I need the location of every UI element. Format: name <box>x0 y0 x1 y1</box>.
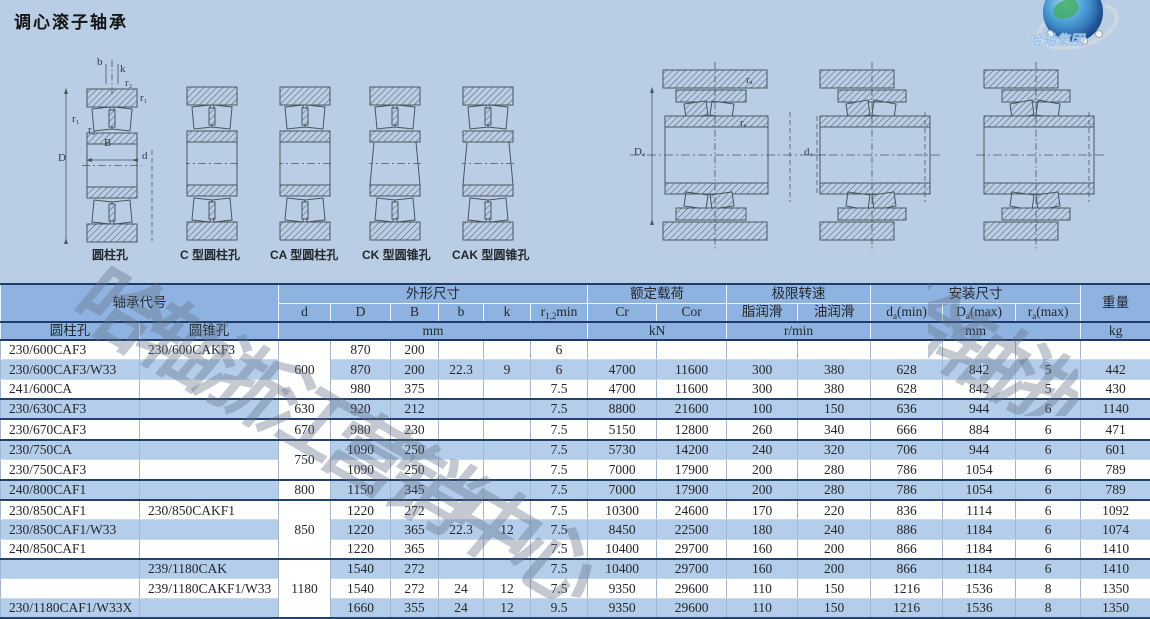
table-cell: 180 <box>727 520 798 539</box>
table-cell <box>439 419 484 440</box>
table-cell: 100 <box>727 399 798 420</box>
table-cell: 365 <box>391 539 439 559</box>
table-cell: 200 <box>798 559 871 579</box>
table-cell: 230/850CAF1/W33 <box>1 520 140 539</box>
table-cell: 1540 <box>331 559 391 579</box>
table-cell: 1536 <box>943 579 1016 598</box>
table-row: 230/1180CAF1/W33X166035524129.5935029600… <box>1 598 1150 618</box>
table-cell: 22500 <box>657 520 727 539</box>
table-cell: 980 <box>331 419 391 440</box>
diagram-caption-c-cylindrical: C 型圆柱孔 <box>180 246 240 263</box>
unit-mm: mm <box>279 322 588 340</box>
table-cell: 1536 <box>943 598 1016 618</box>
table-cell: 24 <box>439 579 484 598</box>
table-cell <box>439 399 484 420</box>
table-cell <box>439 559 484 579</box>
table-cell: 250 <box>391 460 439 480</box>
table-cell: 12800 <box>657 419 727 440</box>
table-cell: 850 <box>279 500 331 559</box>
company-logo-text: 哈轴集团 <box>1028 30 1084 50</box>
table-cell: 630 <box>279 399 331 420</box>
page-title: 调心滚子轴承 <box>14 8 128 33</box>
table-cell: 7.5 <box>531 539 588 559</box>
col-header-Da-max: Da(max) <box>943 303 1016 322</box>
dim-label-da: dₐ <box>804 146 813 158</box>
col-header-cor: Cor <box>657 303 727 322</box>
table-cell: 1184 <box>943 539 1016 559</box>
dim-label-B: B <box>104 137 111 149</box>
table-cell: 1184 <box>943 520 1016 539</box>
table-cell: 10400 <box>588 539 657 559</box>
table-cell <box>1016 340 1081 360</box>
table-cell: 1140 <box>1081 399 1150 420</box>
table-cell: 230/670CAF3 <box>1 419 140 440</box>
diagram-ca-type-cylindrical-bore <box>279 86 331 242</box>
table-cell: 866 <box>871 539 943 559</box>
table-cell: 212 <box>391 399 439 420</box>
table-cell: 200 <box>727 460 798 480</box>
table-cell <box>439 379 484 399</box>
table-cell: 280 <box>798 480 871 501</box>
table-cell: 1220 <box>331 500 391 520</box>
col-header-d: d <box>279 303 331 322</box>
table-cell: 17900 <box>657 460 727 480</box>
dim-label-ra: rₐ <box>746 74 753 86</box>
table-cell: 842 <box>943 360 1016 379</box>
table-cell: 170 <box>727 500 798 520</box>
col-group-mounting: 安装尺寸 <box>871 284 1081 303</box>
dim-label-r2: r₂ <box>125 77 133 89</box>
table-cell: 7.5 <box>531 480 588 501</box>
table-cell: 1216 <box>871 598 943 618</box>
diagram-caption-cylindrical: 圆柱孔 <box>92 246 128 263</box>
table-cell: 6 <box>1016 500 1081 520</box>
table-cell <box>484 460 531 480</box>
table-cell <box>588 340 657 360</box>
dim-label-Da: Dₐ <box>634 146 645 158</box>
col-header-B: B <box>391 303 439 322</box>
table-cell: 280 <box>798 460 871 480</box>
table-cell <box>798 340 871 360</box>
dim-label-d: d <box>142 150 148 162</box>
table-cell <box>439 440 484 460</box>
table-cell: 7.5 <box>531 379 588 399</box>
diagram-cylindrical-bore <box>56 60 166 245</box>
table-cell: 230/600CAF3 <box>1 340 140 360</box>
table-cell: 8 <box>1016 579 1081 598</box>
table-cell: 789 <box>1081 480 1150 501</box>
col-header-tapered-bore: 圆锥孔 <box>140 322 279 340</box>
table-cell <box>140 360 279 379</box>
table-cell: 272 <box>391 500 439 520</box>
col-header-r12min: r1,2min <box>531 303 588 322</box>
table-cell: 12 <box>484 579 531 598</box>
table-cell: 9350 <box>588 598 657 618</box>
table-cell: 22.3 <box>439 520 484 539</box>
col-header-b: b <box>439 303 484 322</box>
table-cell: 150 <box>798 579 871 598</box>
table-cell: 9350 <box>588 579 657 598</box>
table-cell: 884 <box>943 419 1016 440</box>
table-cell: 666 <box>871 419 943 440</box>
table-cell <box>1 559 140 579</box>
col-header-designation: 轴承代号 <box>1 284 279 322</box>
table-cell: 1220 <box>331 539 391 559</box>
table-cell: 6 <box>531 340 588 360</box>
table-cell: 230/1180CAF1/W33X <box>1 598 140 618</box>
table-cell: 272 <box>391 579 439 598</box>
table-cell: 1350 <box>1081 598 1150 618</box>
col-header-oil: 油润滑 <box>798 303 871 322</box>
dim-label-k: k <box>120 63 126 75</box>
table-cell <box>140 379 279 399</box>
catalog-page: 调心滚子轴承 哈轴集团 哈轴浙江营销中心 哈轴浙江营销中心 <box>0 0 1150 619</box>
table-cell <box>1081 340 1150 360</box>
table-row: 230/600CAF3230/600CAKF36008702006 <box>1 340 1150 360</box>
table-cell: 12 <box>484 520 531 539</box>
col-header-ra-max: ra(max) <box>1016 303 1081 322</box>
table-cell: 11600 <box>657 379 727 399</box>
dim-label-r1: r₁ <box>72 113 80 125</box>
table-cell <box>439 539 484 559</box>
table-cell: 22.3 <box>439 360 484 379</box>
table-cell: 628 <box>871 379 943 399</box>
table-cell: 272 <box>391 559 439 579</box>
table-row: 239/1180CAK118015402727.5104002970016020… <box>1 559 1150 579</box>
table-cell: 12 <box>484 598 531 618</box>
unit-kn: kN <box>588 322 727 340</box>
table-cell: 6 <box>1016 399 1081 420</box>
dim-label-r2: r₂ <box>88 124 96 136</box>
table-cell: 200 <box>391 340 439 360</box>
table-cell: 7.5 <box>531 399 588 420</box>
table-cell: 200 <box>798 539 871 559</box>
table-cell: 7000 <box>588 480 657 501</box>
table-cell: 866 <box>871 559 943 579</box>
table-cell: 240/800CAF1 <box>1 480 140 501</box>
table-cell: 230/850CAF1 <box>1 500 140 520</box>
table-cell: 1090 <box>331 460 391 480</box>
table-cell: 24 <box>439 598 484 618</box>
table-cell: 836 <box>871 500 943 520</box>
table-cell: 1114 <box>943 500 1016 520</box>
table-row: 230/850CAF1/W33122036522.3127.5845022500… <box>1 520 1150 539</box>
table-cell <box>943 340 1016 360</box>
col-group-dimensions: 外形尺寸 <box>279 284 588 303</box>
table-cell: 260 <box>727 419 798 440</box>
table-cell: 7.5 <box>531 460 588 480</box>
table-cell <box>439 460 484 480</box>
dim-label-b: b <box>97 56 103 68</box>
table-row: 239/1180CAKF1/W33154027224127.5935029600… <box>1 579 1150 598</box>
table-cell: 842 <box>943 379 1016 399</box>
table-cell: 6 <box>1016 419 1081 440</box>
bearing-spec-table: 轴承代号 外形尺寸 额定载荷 极限转速 安装尺寸 重量 d D B b k r1… <box>0 283 1150 619</box>
table-cell: 670 <box>279 419 331 440</box>
dim-label-ra: rₐ <box>740 117 747 129</box>
bearing-ball-icon <box>1095 30 1103 38</box>
diagram-mounted-variant-2 <box>976 62 1106 252</box>
table-cell: 442 <box>1081 360 1150 379</box>
table-cell: 6 <box>1016 559 1081 579</box>
table-cell: 320 <box>798 440 871 460</box>
table-cell: 300 <box>727 379 798 399</box>
table-cell: 706 <box>871 440 943 460</box>
table-cell: 1660 <box>331 598 391 618</box>
table-header: 轴承代号 外形尺寸 额定载荷 极限转速 安装尺寸 重量 d D B b k r1… <box>1 284 1150 340</box>
diagram-caption-cak-tapered: CAK 型圆锥孔 <box>452 246 529 263</box>
table-cell: 24600 <box>657 500 727 520</box>
table-cell: 6 <box>1016 460 1081 480</box>
table-cell: 5 <box>1016 379 1081 399</box>
table-cell: 800 <box>279 480 331 501</box>
table-cell <box>140 460 279 480</box>
table-cell: 6 <box>1016 539 1081 559</box>
table-cell: 1074 <box>1081 520 1150 539</box>
table-cell <box>484 500 531 520</box>
diagram-mounted-variant-1 <box>812 62 942 252</box>
diagram-cak-type-tapered-bore <box>462 86 514 242</box>
table-cell: 870 <box>331 360 391 379</box>
table-cell: 7.5 <box>531 579 588 598</box>
table-row: 230/630CAF36309202127.588002160010015063… <box>1 399 1150 420</box>
table-cell: 29700 <box>657 539 727 559</box>
table-cell: 870 <box>331 340 391 360</box>
table-cell: 160 <box>727 559 798 579</box>
table-cell: 1150 <box>331 480 391 501</box>
table-cell: 230/750CA <box>1 440 140 460</box>
table-cell <box>871 340 943 360</box>
diagram-c-type-cylindrical-bore <box>186 86 238 242</box>
col-header-k: k <box>484 303 531 322</box>
table-cell: 1216 <box>871 579 943 598</box>
table-cell: 7.5 <box>531 500 588 520</box>
table-cell: 11600 <box>657 360 727 379</box>
table-cell: 240 <box>798 520 871 539</box>
table-cell: 1540 <box>331 579 391 598</box>
table-cell: 430 <box>1081 379 1150 399</box>
table-cell <box>484 379 531 399</box>
table-cell: 150 <box>798 399 871 420</box>
table-cell: 10300 <box>588 500 657 520</box>
table-cell <box>140 399 279 420</box>
table-cell: 944 <box>943 440 1016 460</box>
table-cell: 1180 <box>279 559 331 618</box>
table-cell: 980 <box>331 379 391 399</box>
table-cell: 240/850CAF1 <box>1 539 140 559</box>
table-cell: 9 <box>484 360 531 379</box>
table-cell: 220 <box>798 500 871 520</box>
table-cell <box>1 579 140 598</box>
table-cell: 7.5 <box>531 559 588 579</box>
table-cell: 200 <box>727 480 798 501</box>
table-cell: 355 <box>391 598 439 618</box>
col-group-limit-speed: 极限转速 <box>727 284 871 303</box>
table-cell <box>657 340 727 360</box>
unit-mm: mm <box>871 322 1081 340</box>
table-cell: 5150 <box>588 419 657 440</box>
table-cell: 8800 <box>588 399 657 420</box>
table-cell: 8 <box>1016 598 1081 618</box>
table-cell: 601 <box>1081 440 1150 460</box>
table-cell: 4700 <box>588 379 657 399</box>
dim-label-D: D <box>58 152 66 164</box>
table-cell: 230/600CAF3/W33 <box>1 360 140 379</box>
col-header-D: D <box>331 303 391 322</box>
table-cell: 1350 <box>1081 579 1150 598</box>
table-cell <box>484 340 531 360</box>
col-header-cylindrical-bore: 圆柱孔 <box>1 322 140 340</box>
unit-kg: kg <box>1081 322 1150 340</box>
table-cell: 160 <box>727 539 798 559</box>
table-cell <box>140 539 279 559</box>
table-cell <box>484 419 531 440</box>
col-group-rated-load: 额定载荷 <box>588 284 727 303</box>
table-cell <box>439 500 484 520</box>
table-cell: 789 <box>1081 460 1150 480</box>
table-cell <box>484 480 531 501</box>
table-cell <box>140 440 279 460</box>
table-cell: 230/750CAF3 <box>1 460 140 480</box>
table-cell: 300 <box>727 360 798 379</box>
table-cell <box>140 520 279 539</box>
table-cell: 345 <box>391 480 439 501</box>
table-cell <box>484 559 531 579</box>
table-row: 241/600CA9803757.54700116003003806288425… <box>1 379 1150 399</box>
table-cell: 241/600CA <box>1 379 140 399</box>
table-cell: 628 <box>871 360 943 379</box>
table-cell: 944 <box>943 399 1016 420</box>
table-cell: 29700 <box>657 559 727 579</box>
table-cell: 886 <box>871 520 943 539</box>
table-cell: 240 <box>727 440 798 460</box>
table-cell: 7.5 <box>531 440 588 460</box>
table-cell: 1090 <box>331 440 391 460</box>
table-cell: 6 <box>531 360 588 379</box>
table-cell <box>439 480 484 501</box>
table-cell: 7.5 <box>531 419 588 440</box>
table-cell: 14200 <box>657 440 727 460</box>
table-cell: 9.5 <box>531 598 588 618</box>
table-cell: 1092 <box>1081 500 1150 520</box>
table-cell: 6 <box>1016 520 1081 539</box>
table-cell: 230/630CAF3 <box>1 399 140 420</box>
table-cell: 786 <box>871 460 943 480</box>
table-cell: 230 <box>391 419 439 440</box>
table-cell <box>140 419 279 440</box>
table-cell: 750 <box>279 440 331 480</box>
table-cell <box>484 399 531 420</box>
table-row: 230/670CAF36709802307.551501280026034066… <box>1 419 1150 440</box>
table-cell: 1054 <box>943 480 1016 501</box>
table-cell: 375 <box>391 379 439 399</box>
table-row: 230/750CA75010902507.5573014200240320706… <box>1 440 1150 460</box>
table-cell: 239/1180CAK <box>140 559 279 579</box>
table-row: 230/850CAF1230/850CAKF185012202727.51030… <box>1 500 1150 520</box>
table-cell: 6 <box>1016 480 1081 501</box>
table-cell: 239/1180CAKF1/W33 <box>140 579 279 598</box>
table-body: 230/600CAF3230/600CAKF36008702006230/600… <box>1 340 1150 618</box>
table-cell: 4700 <box>588 360 657 379</box>
table-row: 230/600CAF3/W3387020022.3964700116003003… <box>1 360 1150 379</box>
diagram-caption-ck-tapered: CK 型圆锥孔 <box>362 246 431 263</box>
table-row: 230/750CAF310902507.57000179002002807861… <box>1 460 1150 480</box>
table-cell: 1054 <box>943 460 1016 480</box>
col-header-grease: 脂润滑 <box>727 303 798 322</box>
table-cell <box>727 340 798 360</box>
table-cell: 920 <box>331 399 391 420</box>
table-cell: 5 <box>1016 360 1081 379</box>
table-cell <box>140 598 279 618</box>
unit-rpm: r/min <box>727 322 871 340</box>
table-cell: 365 <box>391 520 439 539</box>
table-cell: 1184 <box>943 559 1016 579</box>
table-cell <box>140 480 279 501</box>
table-cell: 636 <box>871 399 943 420</box>
table-cell: 786 <box>871 480 943 501</box>
table-cell <box>484 440 531 460</box>
table-cell: 7.5 <box>531 520 588 539</box>
table-cell: 7000 <box>588 460 657 480</box>
table-cell: 1410 <box>1081 539 1150 559</box>
table-cell: 5730 <box>588 440 657 460</box>
table-cell: 17900 <box>657 480 727 501</box>
table-cell <box>484 539 531 559</box>
table-cell: 150 <box>798 598 871 618</box>
table-row: 240/850CAF112203657.51040029700160200866… <box>1 539 1150 559</box>
table-cell: 230/600CAKF3 <box>140 340 279 360</box>
table-cell: 21600 <box>657 399 727 420</box>
table-cell: 340 <box>798 419 871 440</box>
table-cell: 10400 <box>588 559 657 579</box>
table-cell <box>439 340 484 360</box>
table-cell: 110 <box>727 579 798 598</box>
table-cell: 1220 <box>331 520 391 539</box>
table-cell: 110 <box>727 598 798 618</box>
table-cell: 29600 <box>657 598 727 618</box>
table-cell: 380 <box>798 379 871 399</box>
table-cell: 29600 <box>657 579 727 598</box>
diagram-mounting-dimensions <box>630 62 830 252</box>
diagram-ck-type-tapered-bore <box>369 86 421 242</box>
table-cell: 471 <box>1081 419 1150 440</box>
table-cell: 8450 <box>588 520 657 539</box>
col-header-weight: 重量 <box>1081 284 1150 322</box>
col-header-cr: Cr <box>588 303 657 322</box>
table-cell: 1410 <box>1081 559 1150 579</box>
table-row: 240/800CAF180011503457.57000179002002807… <box>1 480 1150 501</box>
diagram-caption-ca-cylindrical: CA 型圆柱孔 <box>270 246 338 263</box>
table-cell: 230/850CAKF1 <box>140 500 279 520</box>
table-cell: 200 <box>391 360 439 379</box>
dim-label-r1: r₁ <box>140 92 148 104</box>
table-cell: 380 <box>798 360 871 379</box>
table-cell: 250 <box>391 440 439 460</box>
col-header-da-min: da(min) <box>871 303 943 322</box>
table-cell: 6 <box>1016 440 1081 460</box>
table-cell: 600 <box>279 340 331 399</box>
